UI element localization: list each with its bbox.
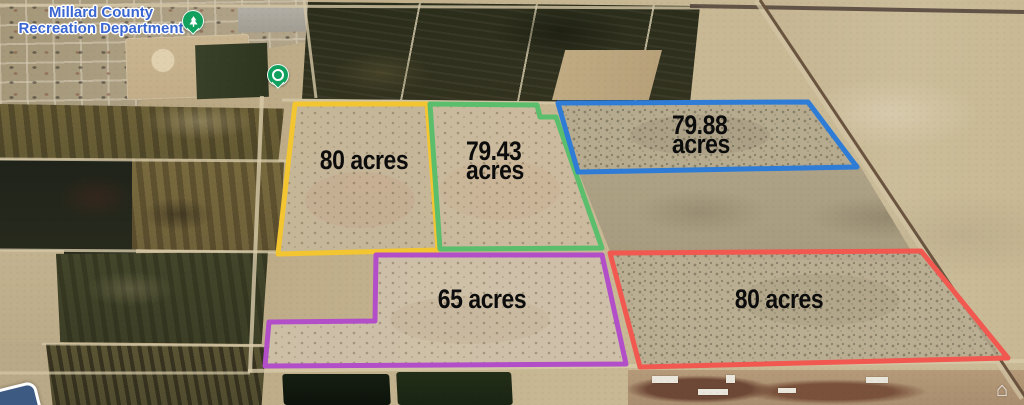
marker-pin[interactable] <box>267 64 289 86</box>
tree-icon <box>187 15 200 28</box>
acreage-unit: acres <box>672 135 730 154</box>
watermark-house-icon: ⌂ <box>996 380 1008 400</box>
building <box>652 376 678 383</box>
pond <box>396 372 513 405</box>
building <box>698 389 728 395</box>
acreage-unit: acres <box>466 161 524 180</box>
pond <box>282 374 391 405</box>
building <box>778 388 796 393</box>
building <box>866 377 888 383</box>
industrial-yard <box>628 370 1024 405</box>
parcel-label-southeast: 80 acres <box>711 287 847 311</box>
poi-label: Millard County Recreation Department <box>15 5 187 37</box>
acreage-text: 80 acres <box>711 287 847 311</box>
parcel-label-northeast: 79.88 acres <box>672 116 730 154</box>
acreage-text: 80 acres <box>305 148 424 172</box>
parcel-label-southwest: 65 acres <box>414 287 550 311</box>
poi-label-line2: Recreation Department <box>18 20 183 37</box>
parcel-label-north-center: 79.43 acres <box>466 142 524 180</box>
park-pin[interactable] <box>182 10 204 32</box>
farm-field <box>0 250 64 344</box>
poi-label-line1: Millard County <box>49 4 153 21</box>
farm-field <box>46 344 266 405</box>
acreage-text: 65 acres <box>414 287 550 311</box>
building <box>726 375 735 383</box>
parcel-label-northwest: 80 acres <box>305 148 424 172</box>
farm-field <box>0 104 284 162</box>
ring-icon <box>272 69 284 81</box>
farm-field <box>0 160 136 254</box>
aerial-map: 80 acres 79.43 acres 79.88 acres 65 acre… <box>0 0 1024 405</box>
farm-field <box>56 252 268 344</box>
